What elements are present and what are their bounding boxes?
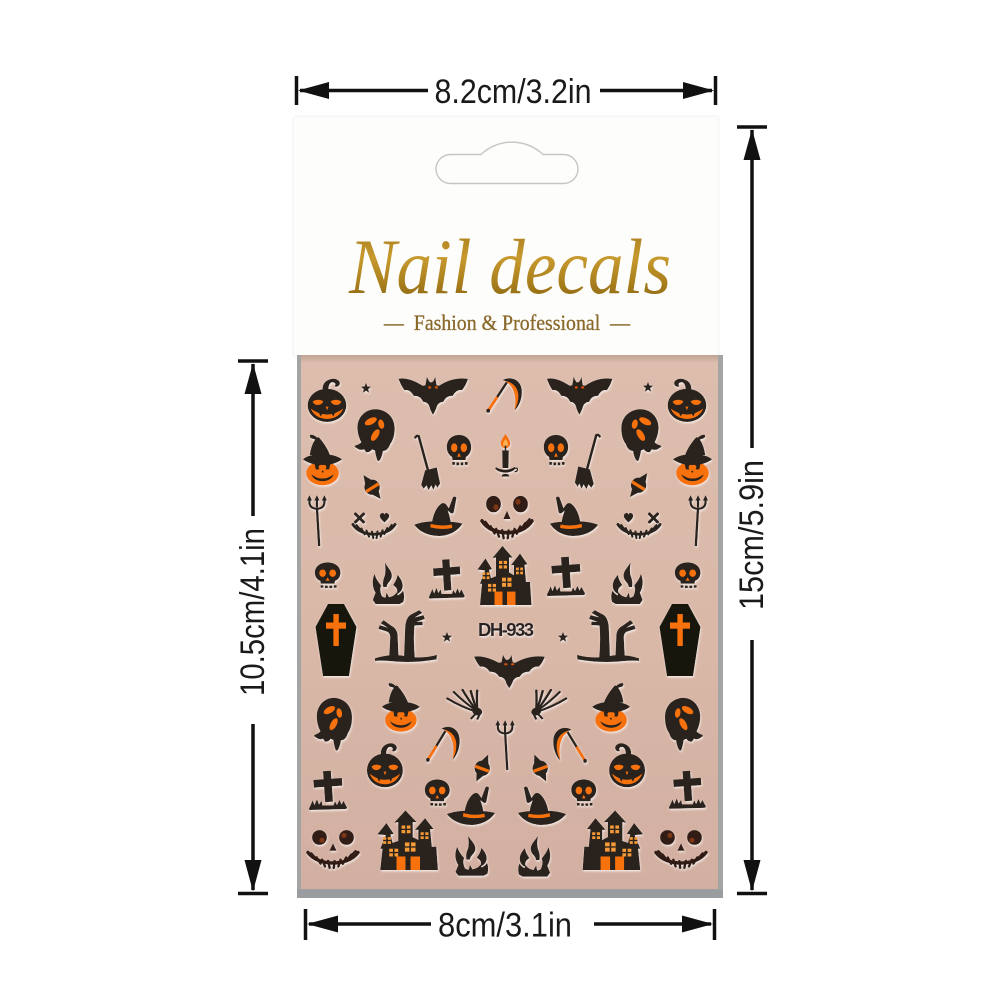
svg-text:8.2cm/3.2in: 8.2cm/3.2in	[435, 73, 592, 111]
svg-text:15cm/5.9in: 15cm/5.9in	[733, 460, 771, 610]
svg-text:8cm/3.1in: 8cm/3.1in	[438, 907, 572, 945]
svg-text:DH-933: DH-933	[478, 619, 534, 640]
svg-text:Nail decals: Nail decals	[348, 223, 671, 310]
svg-text:10.5cm/4.1in: 10.5cm/4.1in	[234, 528, 272, 696]
svg-text:— Fashion & Professional —: — Fashion & Professional —	[383, 310, 631, 335]
